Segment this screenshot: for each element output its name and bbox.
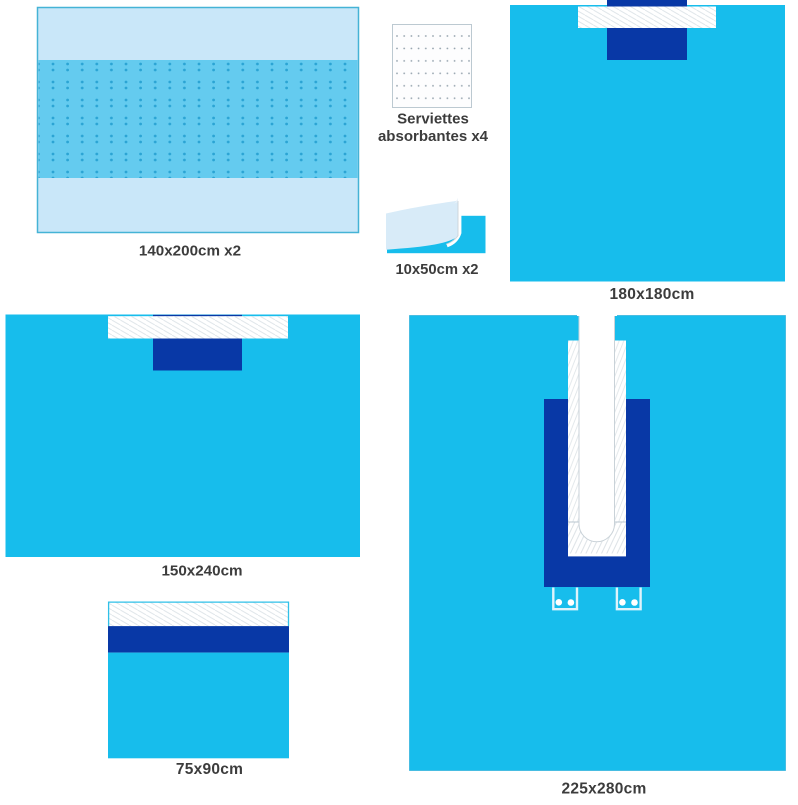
svg-text:150x240cm: 150x240cm xyxy=(161,563,242,580)
svg-text:absorbantes x4: absorbantes x4 xyxy=(378,128,489,145)
svg-text:Serviettes: Serviettes xyxy=(397,111,469,128)
svg-text:75x90cm: 75x90cm xyxy=(176,761,243,778)
svg-text:10x50cm x2: 10x50cm x2 xyxy=(395,262,478,278)
svg-text:180x180cm: 180x180cm xyxy=(610,286,695,303)
svg-text:140x200cm x2: 140x200cm x2 xyxy=(139,243,241,260)
svg-text:225x280cm: 225x280cm xyxy=(562,781,647,798)
